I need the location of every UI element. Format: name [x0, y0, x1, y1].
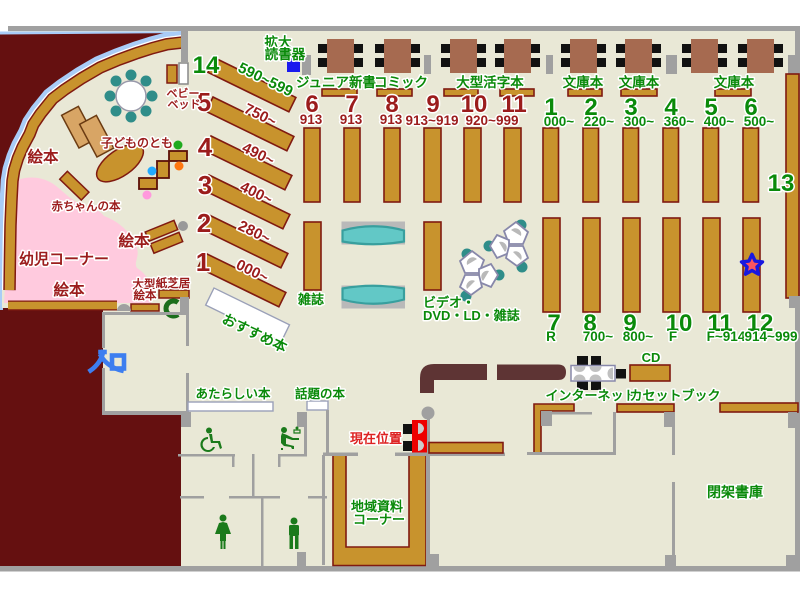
- svg-text:F: F: [669, 329, 677, 344]
- svg-text:大型活字本: 大型活字本: [456, 74, 524, 90]
- svg-text:913: 913: [380, 112, 403, 127]
- svg-text:読書器: 読書器: [265, 46, 306, 62]
- svg-text:4: 4: [198, 132, 213, 162]
- svg-text:000~: 000~: [544, 114, 575, 129]
- svg-text:14: 14: [193, 52, 220, 79]
- svg-text:R: R: [546, 329, 556, 344]
- svg-text:913: 913: [340, 112, 363, 127]
- svg-text:920~999: 920~999: [466, 113, 519, 128]
- svg-text:文庫本: 文庫本: [563, 74, 604, 90]
- svg-text:700~: 700~: [583, 329, 614, 344]
- svg-text:CD: CD: [642, 350, 661, 365]
- svg-text:220~: 220~: [584, 114, 615, 129]
- svg-text:300~: 300~: [624, 114, 655, 129]
- svg-text:13: 13: [768, 170, 795, 197]
- svg-text:ジュニア新書: ジュニア新書: [296, 74, 377, 90]
- svg-text:コーナー: コーナー: [353, 512, 405, 527]
- svg-text:紙芝居: 紙芝居: [156, 276, 191, 290]
- svg-text:子どものとも: 子どものとも: [101, 136, 173, 150]
- svg-text:F~914: F~914: [707, 329, 746, 344]
- svg-text:現在位置: 現在位置: [350, 431, 402, 446]
- svg-text:文庫本: 文庫本: [619, 74, 660, 90]
- svg-text:幼児コーナー: 幼児コーナー: [19, 250, 109, 268]
- svg-text:あたらしい本: あたらしい本: [195, 386, 271, 401]
- svg-text:1: 1: [196, 247, 210, 277]
- svg-text:文庫本: 文庫本: [714, 74, 755, 90]
- svg-text:カセットブック: カセットブック: [629, 388, 720, 403]
- svg-text:3: 3: [198, 170, 212, 200]
- svg-text:360~: 360~: [664, 114, 695, 129]
- svg-text:500~: 500~: [744, 114, 775, 129]
- svg-text:絵本: 絵本: [53, 280, 85, 299]
- svg-text:800~: 800~: [623, 329, 654, 344]
- svg-text:ベッド: ベッド: [168, 98, 201, 111]
- svg-text:DVD・LD・雑誌: DVD・LD・雑誌: [423, 308, 520, 323]
- svg-text:ベビー: ベビー: [167, 86, 200, 100]
- svg-text:赤ちゃんの本: 赤ちゃんの本: [52, 199, 121, 213]
- svg-text:絵本: 絵本: [118, 231, 150, 250]
- svg-text:絵本: 絵本: [134, 288, 157, 302]
- svg-text:インターネット: インターネット: [545, 388, 636, 403]
- svg-text:913: 913: [300, 112, 323, 127]
- svg-text:絵本: 絵本: [27, 147, 59, 166]
- svg-text:雑誌: 雑誌: [297, 292, 324, 307]
- svg-text:913~919: 913~919: [406, 113, 459, 128]
- svg-text:閉架書庫: 閉架書庫: [707, 484, 763, 500]
- svg-text:話題の本: 話題の本: [295, 386, 346, 401]
- svg-text:2: 2: [197, 208, 211, 238]
- svg-text:400~: 400~: [704, 114, 735, 129]
- svg-text:914~999: 914~999: [745, 329, 798, 344]
- svg-text:コミック: コミック: [374, 75, 428, 90]
- svg-text:大型: 大型: [133, 277, 156, 291]
